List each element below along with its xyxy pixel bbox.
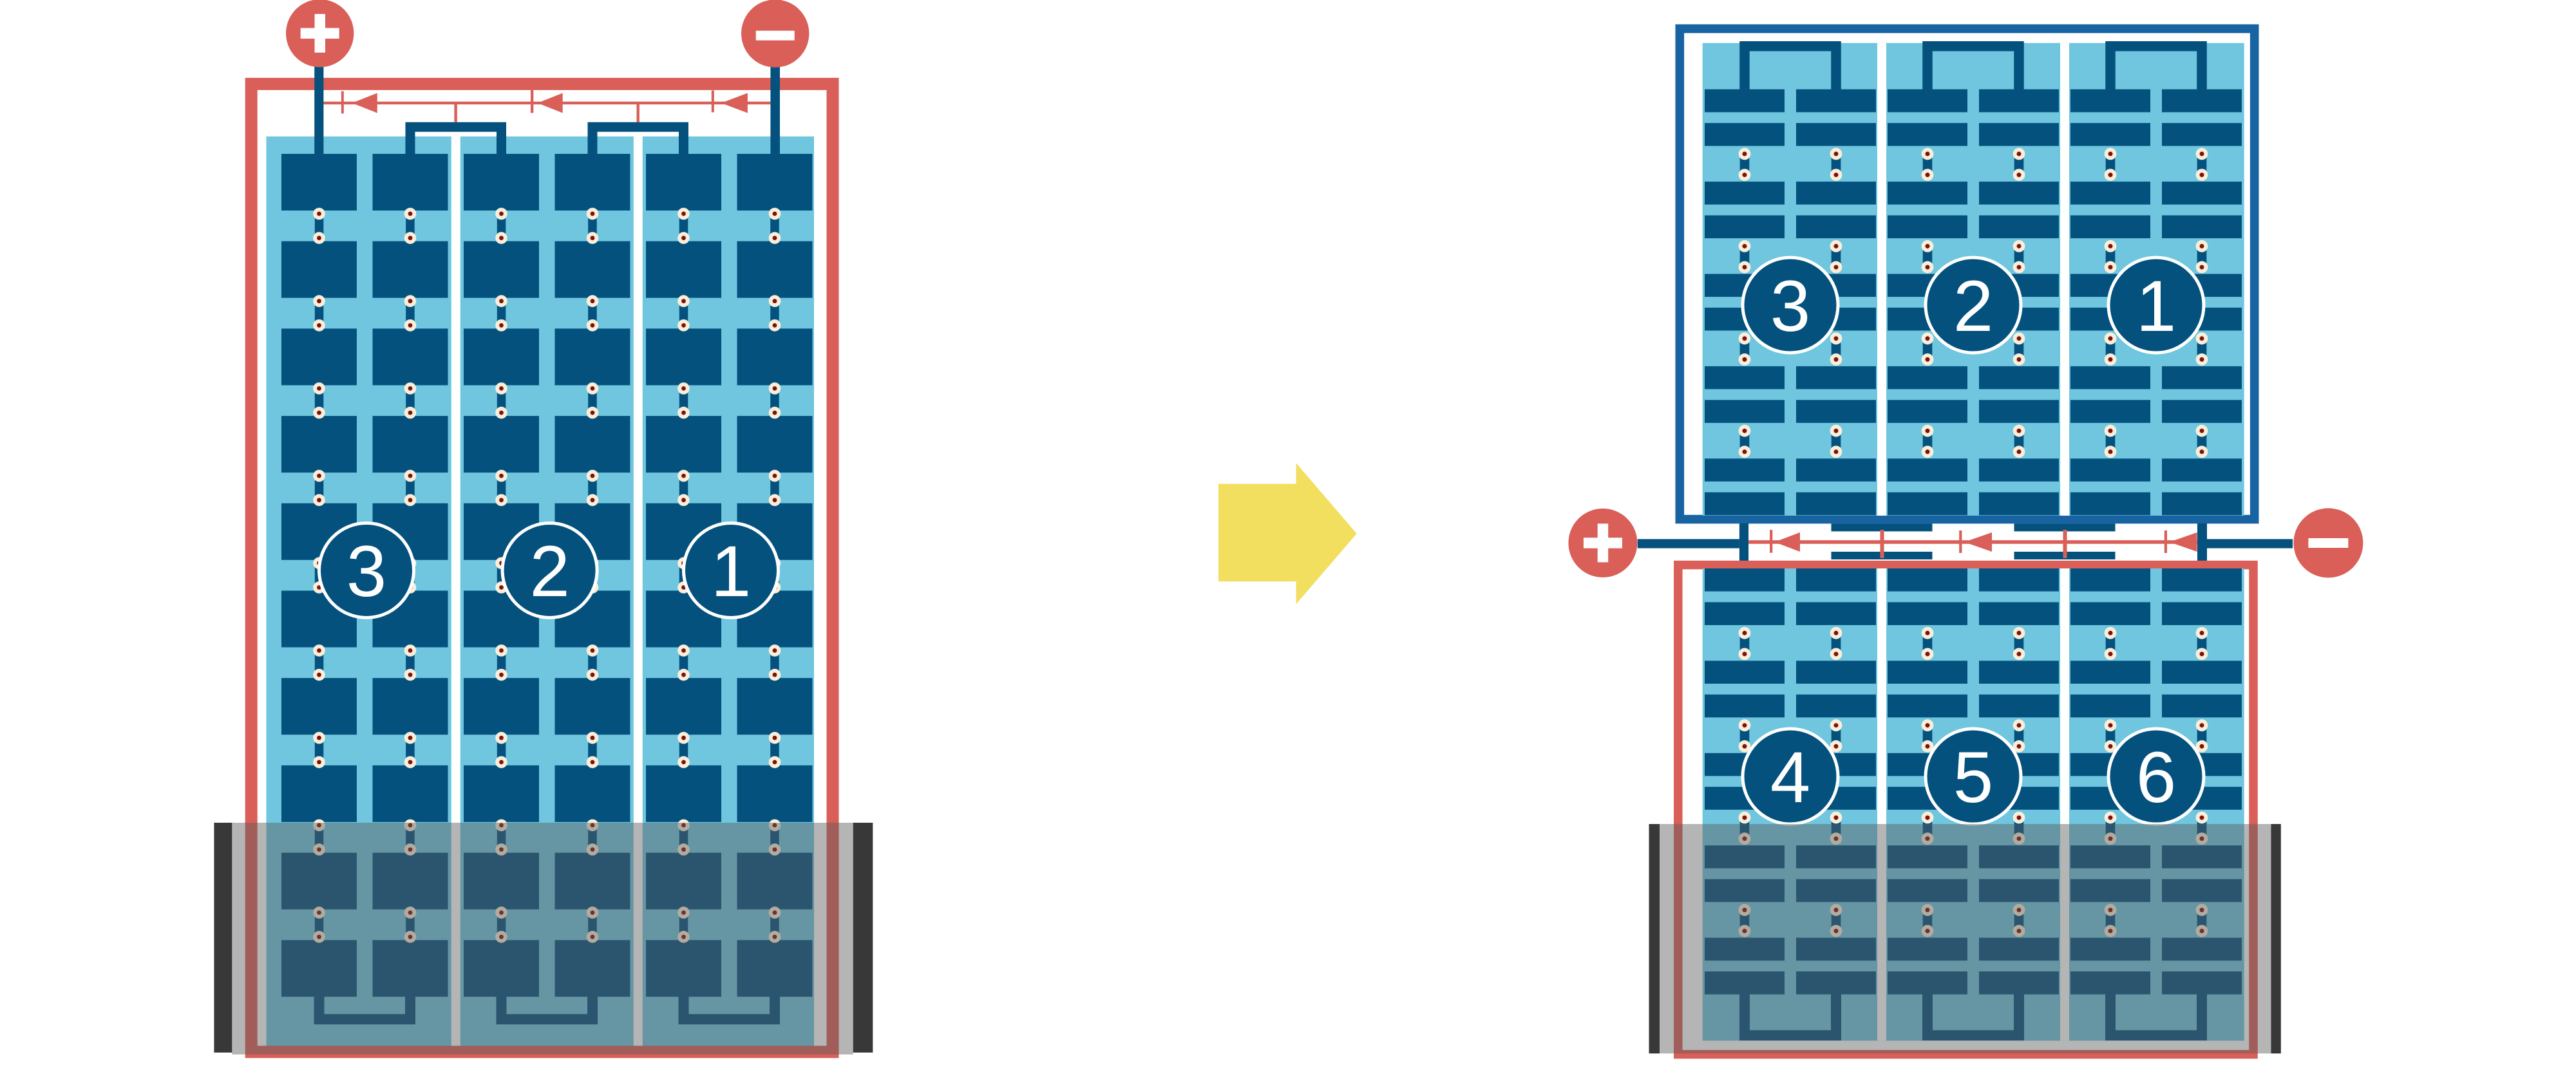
- svg-text:3: 3: [346, 531, 386, 612]
- svg-text:5: 5: [1953, 737, 1993, 818]
- svg-text:2: 2: [1953, 266, 1993, 346]
- svg-text:2: 2: [529, 531, 569, 612]
- svg-text:1: 1: [2136, 266, 2176, 346]
- svg-text:1: 1: [711, 531, 751, 612]
- svg-text:6: 6: [2136, 737, 2176, 818]
- svg-text:4: 4: [1770, 737, 1810, 818]
- svg-text:3: 3: [1770, 266, 1810, 346]
